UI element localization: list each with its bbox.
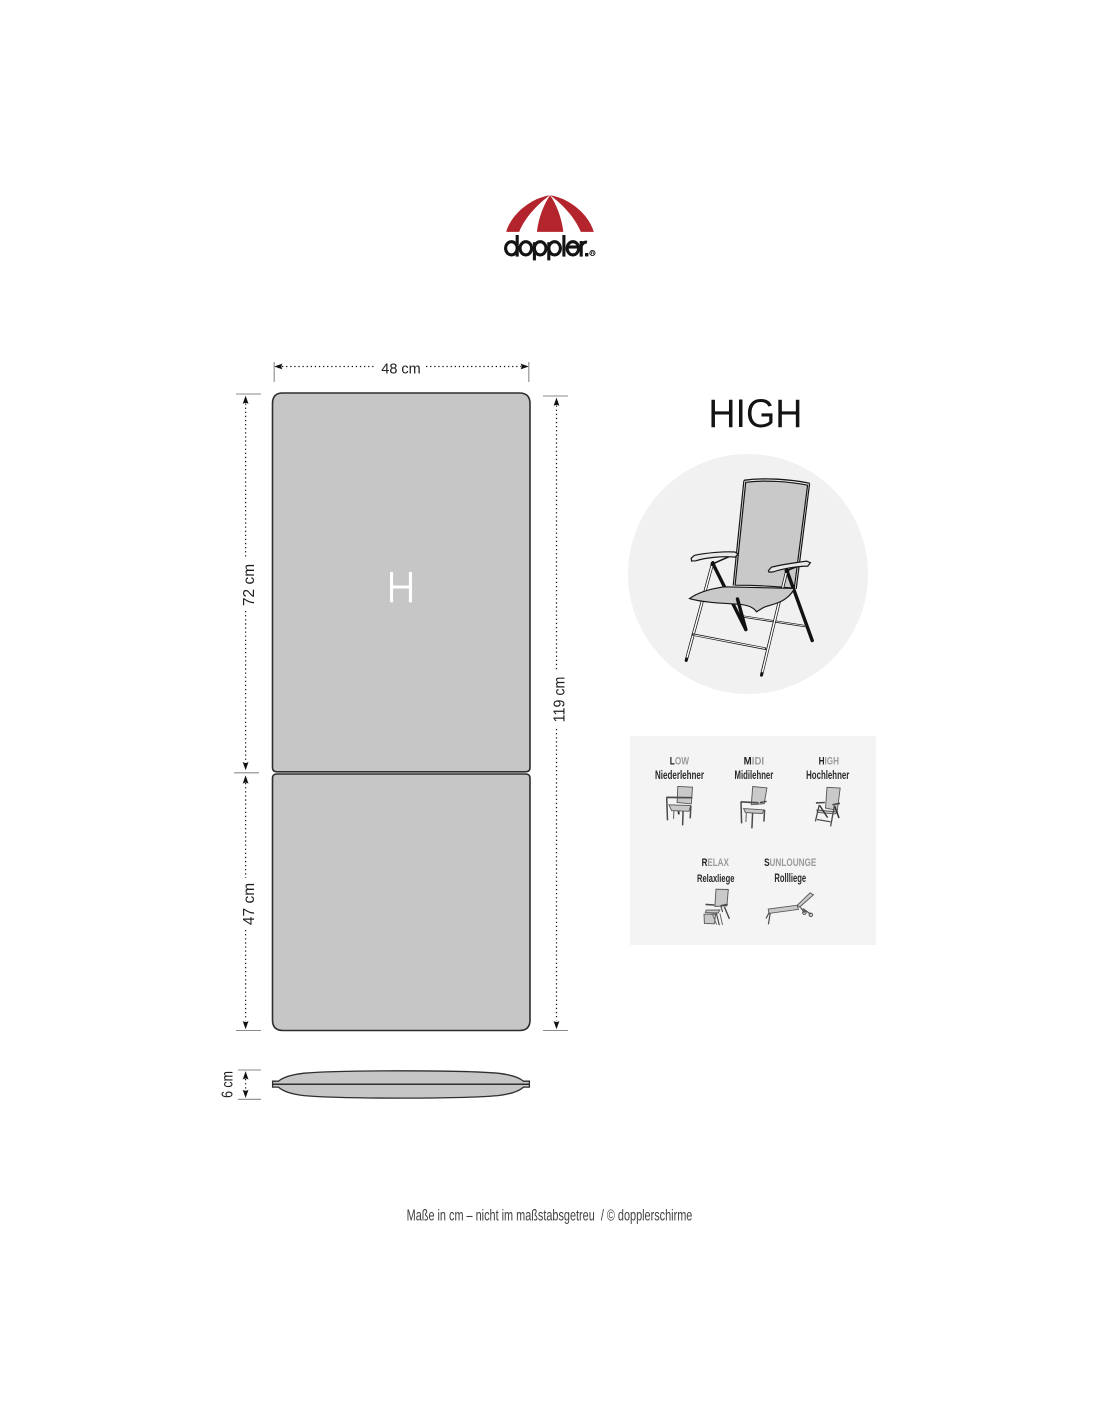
- svg-text:119 cm: 119 cm: [552, 677, 569, 723]
- svg-text:LOW: LOW: [670, 755, 690, 767]
- svg-text:Relaxliege: Relaxliege: [697, 872, 735, 885]
- svg-text:Maße in cm – nicht im maßstabs: Maße in cm – nicht im maßstabsgetreu / ©…: [407, 1207, 693, 1225]
- svg-text:Hochlehner: Hochlehner: [806, 770, 849, 783]
- svg-text:MIDI: MIDI: [744, 756, 765, 768]
- svg-text:Niederlehner: Niederlehner: [655, 770, 704, 783]
- svg-text:HIGH: HIGH: [708, 392, 802, 436]
- svg-text:47 cm: 47 cm: [241, 883, 258, 925]
- svg-text:Rollliege: Rollliege: [774, 872, 806, 885]
- svg-text:SUNLOUNGE: SUNLOUNGE: [764, 857, 817, 869]
- svg-text:RELAX: RELAX: [702, 857, 730, 870]
- svg-text:6 cm: 6 cm: [218, 1071, 236, 1098]
- svg-text:48 cm: 48 cm: [381, 361, 421, 377]
- svg-text:HIGH: HIGH: [819, 755, 839, 767]
- svg-text:Midilehner: Midilehner: [735, 770, 774, 783]
- svg-text:72 cm: 72 cm: [241, 564, 258, 606]
